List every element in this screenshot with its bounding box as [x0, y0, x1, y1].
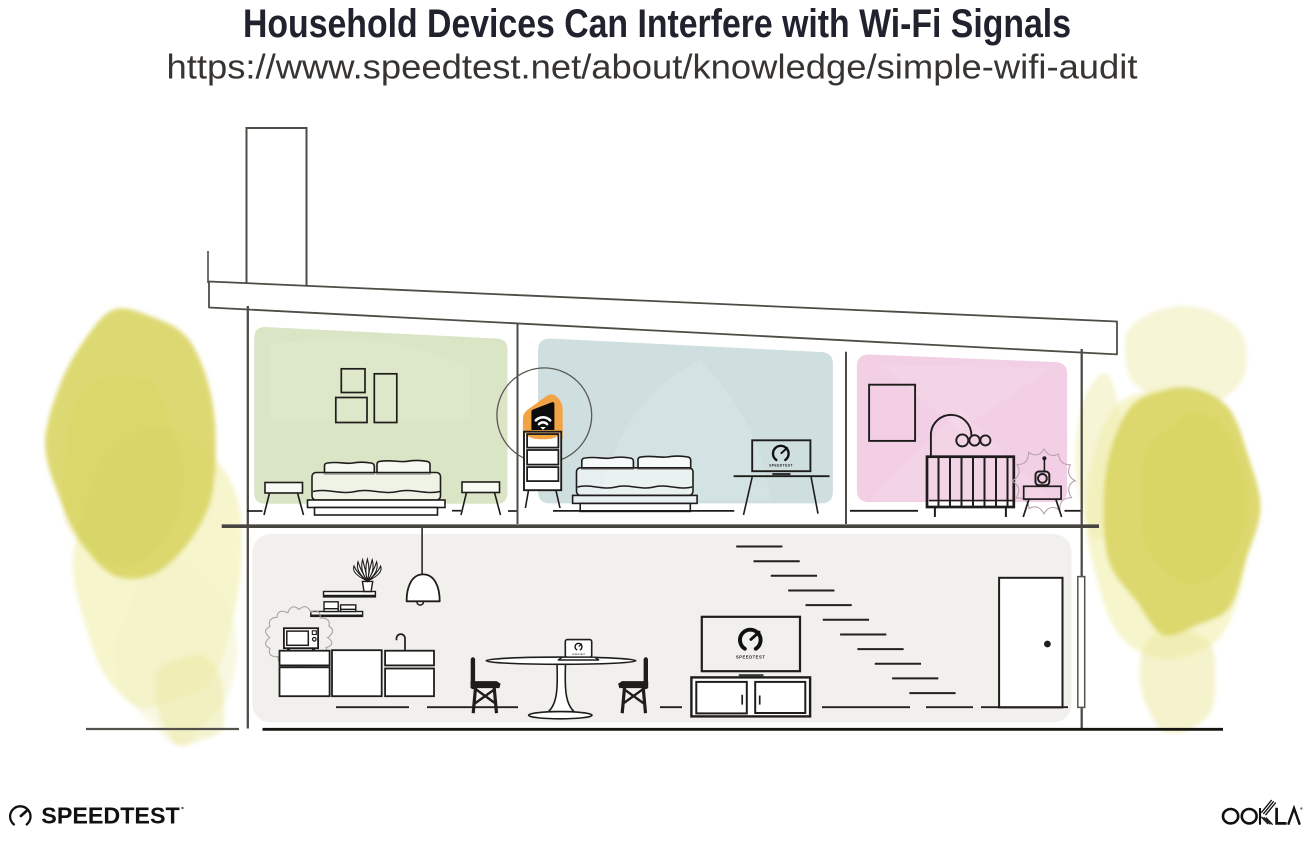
svg-text:SPEEDTEST: SPEEDTEST — [769, 464, 793, 468]
svg-text:SPEEDTEST: SPEEDTEST — [572, 654, 586, 656]
svg-text:SPEEDTEST: SPEEDTEST — [736, 654, 765, 659]
svg-text:https://www.speedtest.net/abou: https://www.speedtest.net/about/knowledg… — [167, 49, 1139, 87]
svg-text:SPEEDTEST: SPEEDTEST — [41, 802, 180, 828]
svg-text:Household Devices Can Interfer: Household Devices Can Interfere with Wi-… — [243, 2, 1071, 46]
